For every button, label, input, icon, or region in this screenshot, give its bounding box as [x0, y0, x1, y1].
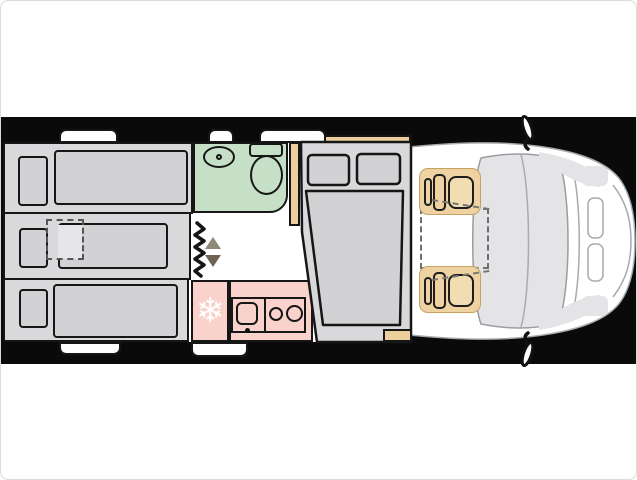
swivel-zone-dashed: [420, 208, 489, 269]
kitchen-sink: [236, 302, 258, 325]
pullout-extension-dashed: [46, 219, 84, 260]
floorplan-image: ❄: [0, 0, 637, 480]
basin-drain: [216, 154, 222, 160]
pillow: [19, 289, 48, 328]
service-hatch-rear: [59, 342, 121, 355]
headrest: [424, 178, 432, 206]
cab-seat-driver: [419, 266, 481, 313]
bed-step-locker: [384, 330, 411, 341]
roof-vent-bathroom: [208, 129, 234, 143]
roof-vent-rear: [59, 129, 118, 143]
pillow: [357, 154, 400, 184]
headrest: [424, 277, 432, 305]
bathroom: [193, 142, 288, 213]
rear-bed-middle: [3, 212, 191, 280]
arrow-down-icon: [205, 255, 221, 267]
pillow: [19, 228, 48, 268]
grille-slat-lower: [588, 244, 603, 281]
snowflake-icon: ❄: [196, 294, 225, 328]
hob-burner-small: [269, 307, 283, 321]
rear-bed-bottom: [3, 278, 189, 342]
tap: [245, 328, 250, 333]
rear-bed-top: [3, 142, 193, 214]
pillow: [308, 155, 349, 185]
grille-slat-upper: [588, 198, 603, 238]
mattress: [54, 150, 188, 205]
sink-section: [233, 299, 266, 331]
entry-door: [189, 219, 225, 279]
french-bed: [297, 140, 415, 346]
cab-seat-passenger: [419, 168, 481, 215]
mattress: [53, 284, 178, 338]
kitchen-unit: [231, 297, 306, 333]
door-zigzag-icon: [195, 223, 204, 276]
seat-cushion: [448, 274, 474, 307]
fridge-freezer: ❄: [191, 280, 229, 342]
headlight-top: [582, 166, 608, 186]
arrow-up-icon: [205, 237, 221, 249]
toilet-bowl: [250, 155, 283, 195]
headlight-bottom: [582, 296, 608, 316]
entry-step: [191, 342, 248, 357]
pillow: [18, 156, 48, 206]
backrest: [433, 174, 446, 211]
mattress: [306, 191, 403, 325]
